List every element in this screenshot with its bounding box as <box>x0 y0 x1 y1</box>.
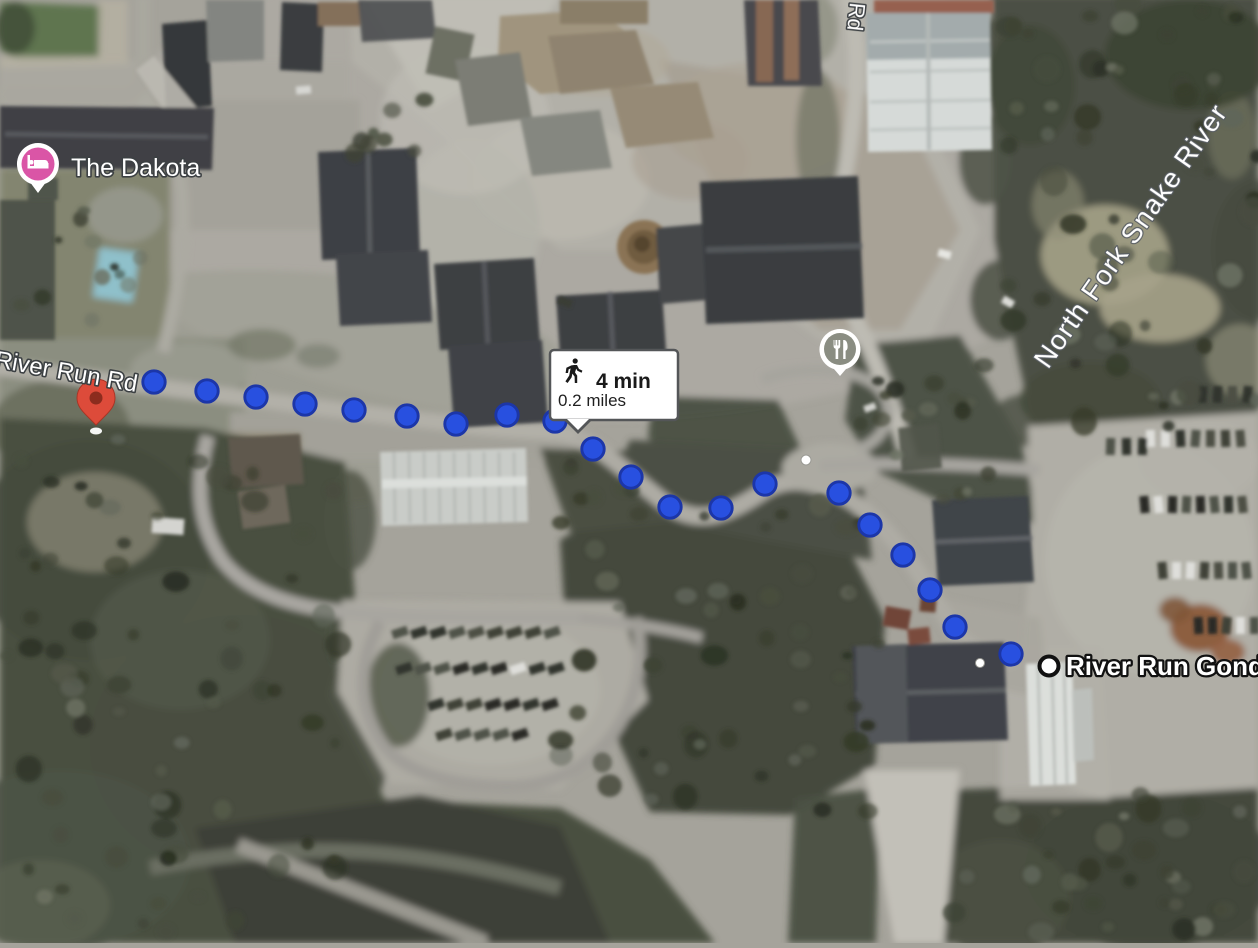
svg-text:Rd: Rd <box>842 1 870 32</box>
svg-text:0.2 miles: 0.2 miles <box>558 391 626 410</box>
svg-text:4 min: 4 min <box>596 370 651 393</box>
svg-text:The Dakota: The Dakota <box>71 154 200 182</box>
svg-text:River Run Gondola: River Run Gondola <box>1066 651 1258 681</box>
